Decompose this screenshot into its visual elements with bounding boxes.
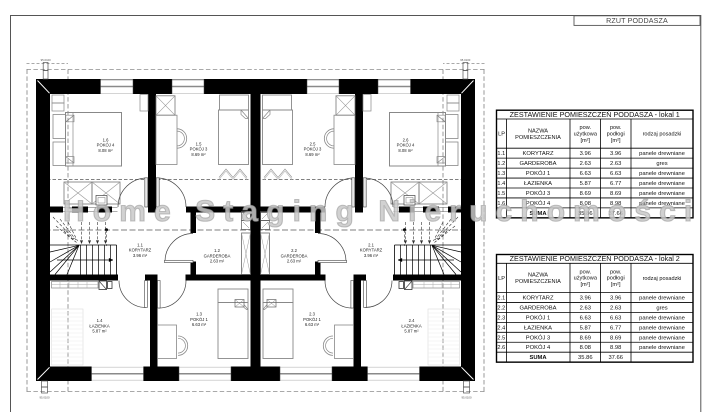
svg-text:2.1: 2.1: [368, 242, 374, 247]
svg-text:8.69: 8.69: [580, 335, 591, 341]
svg-text:1.6: 1.6: [103, 137, 109, 142]
svg-text:5.87: 5.87: [580, 181, 591, 187]
svg-text:POKÓJ 4: POKÓJ 4: [526, 344, 551, 351]
svg-text:6.63 m²: 6.63 m²: [305, 322, 320, 327]
svg-text:6.63: 6.63: [580, 315, 591, 321]
svg-text:3.96 m²: 3.96 m²: [133, 253, 148, 258]
svg-text:2.6: 2.6: [403, 137, 409, 142]
svg-text:37.66: 37.66: [608, 355, 623, 361]
svg-text:95.0100: 95.0100: [460, 58, 471, 62]
svg-text:3.96: 3.96: [580, 151, 591, 157]
svg-text:podłogi: podłogi: [607, 276, 625, 282]
svg-text:5.87: 5.87: [580, 325, 591, 331]
svg-text:KORYTARZ: KORYTARZ: [522, 151, 553, 157]
svg-text:2.3: 2.3: [497, 315, 505, 321]
svg-text:POKÓJ 1: POKÓJ 1: [526, 170, 550, 177]
svg-text:gres: gres: [656, 305, 667, 311]
svg-text:gres: gres: [656, 161, 667, 167]
svg-text:LP: LP: [498, 132, 505, 138]
svg-text:panele drewniane: panele drewniane: [639, 315, 685, 321]
svg-text:2.4: 2.4: [497, 325, 505, 331]
svg-text:6.77: 6.77: [610, 181, 621, 187]
svg-text:rodzaj posadzki: rodzaj posadzki: [643, 276, 682, 282]
svg-text:panele drewniane: panele drewniane: [639, 325, 685, 331]
svg-text:1.4: 1.4: [97, 318, 103, 323]
svg-text:POKÓJ 3: POKÓJ 3: [526, 334, 550, 341]
svg-text:2.63: 2.63: [580, 305, 591, 311]
svg-text:2.63: 2.63: [610, 161, 621, 167]
svg-text:2.3: 2.3: [309, 312, 315, 317]
svg-text:KORYTARZ: KORYTARZ: [129, 248, 152, 253]
svg-text:użytkowa: użytkowa: [574, 131, 598, 137]
svg-text:1.1: 1.1: [497, 151, 505, 157]
svg-text:2.63: 2.63: [610, 305, 621, 311]
svg-text:POKÓJ 1: POKÓJ 1: [526, 314, 550, 321]
svg-text:2.1: 2.1: [497, 295, 505, 301]
svg-text:ŁAZIENKA: ŁAZIENKA: [524, 181, 552, 187]
svg-text:pow.: pow.: [580, 269, 592, 275]
svg-text:8.69 m²: 8.69 m²: [191, 152, 206, 157]
svg-text:panele drewniane: panele drewniane: [639, 345, 685, 351]
svg-text:GARDEROBA: GARDEROBA: [204, 253, 231, 258]
svg-text:[m²]: [m²]: [580, 138, 590, 144]
svg-text:2.63: 2.63: [580, 161, 591, 167]
svg-text:6.63: 6.63: [580, 171, 591, 177]
svg-text:pow.: pow.: [610, 269, 622, 275]
svg-text:5.87 m²: 5.87 m²: [404, 329, 419, 334]
svg-text:POMIESZCZENIA: POMIESZCZENIA: [515, 279, 561, 285]
svg-text:ŁAZIENKA: ŁAZIENKA: [401, 323, 421, 328]
svg-text:podłogi: podłogi: [607, 131, 625, 137]
svg-text:pow.: pow.: [610, 125, 622, 131]
svg-text:6.63: 6.63: [610, 171, 621, 177]
svg-text:panele drewniane: panele drewniane: [639, 151, 685, 157]
svg-text:[m²]: [m²]: [611, 138, 621, 144]
svg-text:2.4: 2.4: [409, 318, 415, 323]
svg-text:8.98: 8.98: [610, 345, 621, 351]
svg-text:2.6: 2.6: [497, 345, 505, 351]
svg-text:6.63 m²: 6.63 m²: [192, 322, 207, 327]
svg-text:1.2: 1.2: [214, 248, 220, 253]
svg-text:rodzaj posadzki: rodzaj posadzki: [643, 132, 682, 138]
svg-text:35.86: 35.86: [578, 355, 593, 361]
svg-text:panele drewniane: panele drewniane: [639, 335, 685, 341]
svg-text:RZUT PODDASZA: RZUT PODDASZA: [606, 17, 668, 25]
svg-text:8.69: 8.69: [610, 335, 621, 341]
svg-text:KORYTARZ: KORYTARZ: [522, 295, 553, 301]
svg-text:POMIESZCZENIA: POMIESZCZENIA: [515, 135, 561, 141]
svg-text:GARDEROBA: GARDEROBA: [281, 253, 308, 258]
svg-text:6.63: 6.63: [610, 315, 621, 321]
svg-text:8.08: 8.08: [580, 345, 591, 351]
svg-text:ZESTAWIENIE POMIESZCZEŃ PODDAS: ZESTAWIENIE POMIESZCZEŃ PODDASZA - lokal…: [510, 254, 680, 263]
svg-text:95.0100: 95.0100: [41, 58, 52, 62]
svg-text:3.96 m²: 3.96 m²: [364, 253, 379, 258]
svg-text:1.1: 1.1: [137, 242, 143, 247]
svg-text:1.5: 1.5: [196, 141, 202, 146]
svg-text:POKÓJ 1: POKÓJ 1: [303, 317, 321, 322]
svg-text:2.5: 2.5: [497, 335, 505, 341]
svg-text:[m²]: [m²]: [611, 282, 621, 288]
svg-text:ZESTAWIENIE POMIESZCZEŃ PODDAS: ZESTAWIENIE POMIESZCZEŃ PODDASZA - lokal…: [510, 110, 680, 119]
svg-text:95.0100: 95.0100: [461, 395, 472, 399]
svg-text:ŁAZIENKA: ŁAZIENKA: [524, 325, 552, 331]
svg-text:LP: LP: [498, 276, 505, 282]
svg-text:pow.: pow.: [580, 125, 592, 131]
svg-text:ŁAZIENKA: ŁAZIENKA: [89, 323, 109, 328]
svg-text:95.0100: 95.0100: [39, 395, 50, 399]
svg-text:panele drewniane: panele drewniane: [639, 295, 685, 301]
svg-text:POKÓJ 4: POKÓJ 4: [97, 143, 115, 148]
svg-text:8.08 m²: 8.08 m²: [98, 148, 113, 153]
svg-text:KORYTARZ: KORYTARZ: [360, 248, 383, 253]
svg-text:1.2: 1.2: [497, 161, 505, 167]
svg-text:5.87 m²: 5.87 m²: [92, 329, 107, 334]
svg-text:1.4: 1.4: [497, 181, 505, 187]
svg-text:POKÓJ 4: POKÓJ 4: [397, 143, 415, 148]
svg-text:3.96: 3.96: [580, 295, 591, 301]
svg-text:POKÓJ 3: POKÓJ 3: [304, 147, 322, 152]
svg-text:3.96: 3.96: [610, 295, 621, 301]
svg-text:8.08 m²: 8.08 m²: [398, 148, 413, 153]
svg-text:GARDEROBA: GARDEROBA: [519, 161, 556, 167]
svg-text:NAZWA: NAZWA: [528, 273, 548, 279]
svg-text:2.5: 2.5: [310, 141, 316, 146]
svg-text:2.63 m²: 2.63 m²: [287, 259, 302, 264]
svg-text:8.69 m²: 8.69 m²: [305, 152, 320, 157]
svg-text:panele drewniane: panele drewniane: [639, 171, 685, 177]
svg-text:NAZWA: NAZWA: [528, 128, 548, 134]
svg-text:POKÓJ 1: POKÓJ 1: [190, 317, 208, 322]
svg-text:panele drewniane: panele drewniane: [639, 181, 685, 187]
svg-text:1.3: 1.3: [196, 312, 202, 317]
svg-text:2.2: 2.2: [497, 305, 505, 311]
svg-text:[m²]: [m²]: [580, 282, 590, 288]
svg-text:3.96: 3.96: [610, 151, 621, 157]
svg-text:Home Staging Nieruchomości: Home Staging Nieruchomości: [63, 195, 700, 228]
svg-text:SUMA: SUMA: [529, 355, 547, 361]
svg-text:2.2: 2.2: [291, 248, 297, 253]
svg-text:1.3: 1.3: [497, 171, 505, 177]
svg-text:POKÓJ 3: POKÓJ 3: [190, 147, 208, 152]
svg-text:GARDEROBA: GARDEROBA: [519, 305, 556, 311]
svg-text:2.63 m²: 2.63 m²: [210, 259, 225, 264]
svg-text:6.77: 6.77: [610, 325, 621, 331]
svg-text:użytkowa: użytkowa: [574, 276, 598, 282]
